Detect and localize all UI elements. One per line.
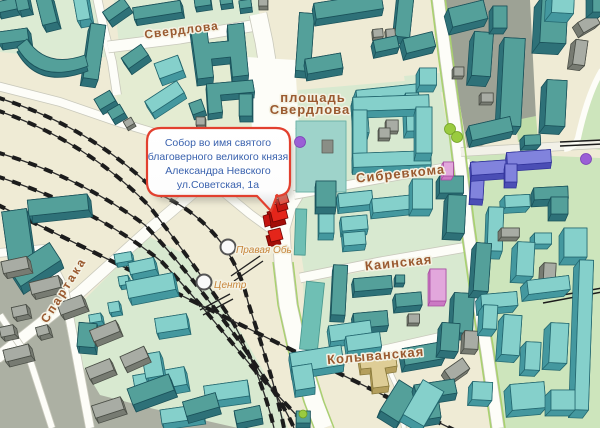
svg-text:Свердлова: Свердлова: [270, 102, 350, 117]
svg-text:ул.Советская, 1а: ул.Советская, 1а: [177, 179, 259, 191]
svg-text:Собор во имя святого: Собор во имя святого: [165, 137, 271, 149]
svg-text:Центр: Центр: [214, 280, 247, 291]
svg-text:благоверного великого князя: благоверного великого князя: [148, 151, 289, 163]
svg-text:Правая Обь: Правая Обь: [236, 244, 292, 256]
svg-text:Александра Невского: Александра Невского: [165, 165, 271, 177]
